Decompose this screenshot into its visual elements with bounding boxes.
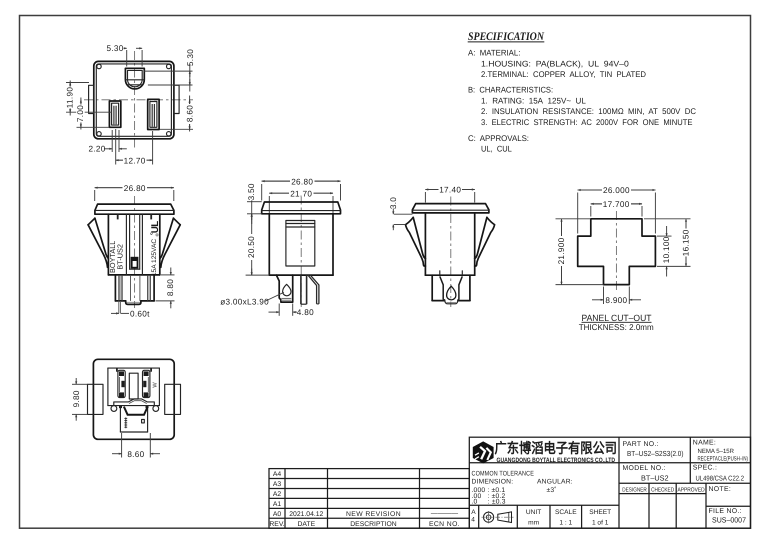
svg-text:±3˚: ±3˚ xyxy=(547,486,557,494)
svg-text:SHEET: SHEET xyxy=(589,509,611,516)
svg-text:1 of 1: 1 of 1 xyxy=(592,519,609,526)
svg-text:PART NO.:: PART NO.: xyxy=(623,441,659,448)
svg-text:SUS–0007: SUS–0007 xyxy=(712,515,746,524)
svg-text:THICKNESS: 2.0mm: THICKNESS: 2.0mm xyxy=(579,322,654,332)
svg-text:A3: A3 xyxy=(273,481,282,488)
svg-text:1. RATING: 15A 125V~ UL: 1. RATING: 15A 125V~ UL xyxy=(481,96,586,105)
svg-text:UNIT: UNIT xyxy=(526,509,541,516)
svg-text:9.80: 9.80 xyxy=(72,390,81,407)
svg-text:10.100: 10.100 xyxy=(662,236,671,263)
svg-text:DIMENSION:: DIMENSION: xyxy=(472,479,514,486)
svg-text:NEW REVISION: NEW REVISION xyxy=(346,511,401,518)
svg-text:UL498/CSA C22.2: UL498/CSA C22.2 xyxy=(696,475,745,483)
svg-text:26.000: 26.000 xyxy=(603,186,630,195)
svg-text:UL: UL xyxy=(150,221,161,233)
svg-text:广东博滔电子有限公司: 广东博滔电子有限公司 xyxy=(495,440,618,457)
svg-text:7.00: 7.00 xyxy=(76,105,85,122)
svg-text:NOTE:: NOTE: xyxy=(709,486,732,493)
svg-text:DESCRIPTION: DESCRIPTION xyxy=(350,521,397,528)
svg-text:A: A xyxy=(471,509,476,516)
svg-text:11.90: 11.90 xyxy=(66,87,75,109)
svg-text:C: APPROVALS:: C: APPROVALS: xyxy=(468,134,529,143)
svg-text:REV.: REV. xyxy=(269,521,284,528)
svg-text:FILE NO.:: FILE NO.: xyxy=(709,508,742,515)
svg-text:1 : 1: 1 : 1 xyxy=(559,519,572,526)
svg-text:26.80: 26.80 xyxy=(124,184,146,193)
svg-text:BT-US2: BT-US2 xyxy=(115,244,124,270)
svg-text:4.80: 4.80 xyxy=(297,308,314,317)
svg-text:17.40: 17.40 xyxy=(439,186,461,195)
svg-text:20.50: 20.50 xyxy=(247,236,256,258)
svg-text:A: MATERIAL:: A: MATERIAL: xyxy=(468,48,520,57)
svg-text:8.60: 8.60 xyxy=(186,105,195,122)
svg-text:NEMA 5–15R: NEMA 5–15R xyxy=(698,448,735,455)
svg-text:W: W xyxy=(152,382,158,388)
svg-text:2021.04.12: 2021.04.12 xyxy=(289,511,323,518)
svg-text:16.150: 16.150 xyxy=(682,229,691,256)
svg-text:————: ———— xyxy=(431,510,458,517)
svg-text:17.700: 17.700 xyxy=(603,200,630,209)
svg-text:8.80: 8.80 xyxy=(166,279,175,296)
svg-text:21.900: 21.900 xyxy=(557,237,566,264)
svg-text:A4: A4 xyxy=(273,471,282,478)
svg-text:21.70: 21.70 xyxy=(290,189,312,198)
svg-text:SPEC.:: SPEC.: xyxy=(693,465,717,472)
svg-text:DESIGNER: DESIGNER xyxy=(622,486,647,493)
svg-text:GUANGDONG BOYTALL ELECTRONICS: GUANGDONG BOYTALL ELECTRONICS CO.,LTD xyxy=(497,457,616,464)
svg-text:DATE: DATE xyxy=(297,521,315,528)
svg-text:3.50: 3.50 xyxy=(247,183,256,200)
svg-text:SCALE: SCALE xyxy=(555,509,577,516)
svg-text:5.30: 5.30 xyxy=(186,49,195,66)
svg-text:12.70: 12.70 xyxy=(124,156,146,165)
svg-text:1.HOUSING: PA(BLACK), UL 94: 1.HOUSING: PA(BLACK), UL 94V–0 xyxy=(481,60,629,69)
svg-text:0.60t: 0.60t xyxy=(130,309,150,318)
svg-text:4: 4 xyxy=(471,517,475,524)
svg-text:RECEPTACLE(PUSH–IN): RECEPTACLE(PUSH–IN) xyxy=(698,455,749,462)
svg-text:3.0: 3.0 xyxy=(389,197,398,209)
svg-text:8.60: 8.60 xyxy=(127,450,144,459)
svg-text:ECN NO.: ECN NO. xyxy=(429,521,460,528)
svg-text:A0: A0 xyxy=(273,511,282,518)
svg-text:UL, CUL: UL, CUL xyxy=(481,145,512,154)
svg-text:A1: A1 xyxy=(273,501,282,508)
svg-text:BT–US2–S2S3(2.0): BT–US2–S2S3(2.0) xyxy=(627,449,684,458)
svg-text:MODEL NO.:: MODEL NO.: xyxy=(623,465,666,472)
svg-text:2.TERMINAL: COPPER ALLOY, T: 2.TERMINAL: COPPER ALLOY, TIN PLATED xyxy=(481,70,646,79)
svg-text:BT–US2: BT–US2 xyxy=(641,473,669,482)
svg-text:ANGULAR:: ANGULAR: xyxy=(537,479,573,486)
svg-text:B: CHARACTERISTICS:: B: CHARACTERISTICS: xyxy=(468,85,553,94)
svg-text:COMMON TOLERANCE: COMMON TOLERANCE xyxy=(472,471,535,478)
svg-text:8.900: 8.900 xyxy=(605,296,627,305)
svg-text:APPROVED: APPROVED xyxy=(677,486,704,493)
svg-text:5.30: 5.30 xyxy=(107,44,124,53)
svg-text:2. INSULATION RESISTANCE: 1: 2. INSULATION RESISTANCE: 100MΩ MIN, AT … xyxy=(481,107,696,116)
svg-text:ø3.00xL3.90: ø3.00xL3.90 xyxy=(220,298,269,307)
svg-text:CHECKED: CHECKED xyxy=(651,486,674,493)
svg-text:26.80: 26.80 xyxy=(291,177,313,186)
svg-text:3. ELECTRIC STRENGTH: AC 2: 3. ELECTRIC STRENGTH: AC 2000V FOR ONE M… xyxy=(481,118,693,127)
svg-text:NAME:: NAME: xyxy=(693,440,716,447)
svg-text:A2: A2 xyxy=(273,491,282,498)
svg-text:.0 : ±0.3: .0 : ±0.3 xyxy=(472,499,506,506)
svg-text:SPECIFICATION: SPECIFICATION xyxy=(468,31,545,43)
svg-text:2.20: 2.20 xyxy=(89,145,106,154)
svg-text:15A 125VAC: 15A 125VAC xyxy=(151,239,158,277)
svg-text:mm: mm xyxy=(528,519,539,526)
